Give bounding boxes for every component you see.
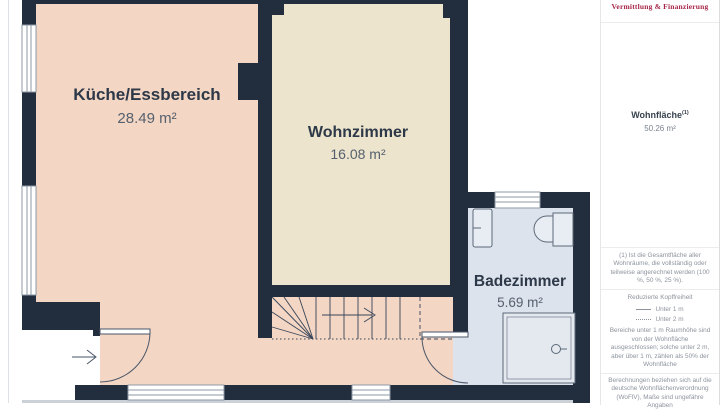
divider [601,373,719,374]
shower [503,313,575,383]
wall-notch-top [272,0,284,15]
wall-bath-left [453,297,468,336]
info-sidebar: Vermittlung & Finanzierung Wohnfläche(1)… [600,0,720,405]
wall-step-bottom-left [22,302,100,330]
legend-under-2m-label: Unter 2 m [655,316,683,323]
living-area-total: Wohnfläche(1) 50.26 m² [601,110,719,133]
wall-left-mid [22,92,36,186]
wall-living-right [450,0,468,297]
living-area-label: Wohnfläche(1) [601,110,719,120]
living-label: Wohnzimmer [308,124,408,141]
window-left-lower [22,186,36,295]
divider [601,289,719,290]
divider [601,22,719,23]
disclaimer-text: Berechnungen beziehen sich auf die deuts… [601,377,719,411]
wall-interior [258,0,272,338]
living-area: 16.08 m² [330,146,386,162]
living-floor [272,4,450,285]
wall-left-top [22,0,36,25]
wall-bath-right [573,192,590,403]
dotted-line-icon [636,319,651,320]
kitchen-area: 28.49 m² [117,110,176,127]
bath-area: 5.69 m² [497,295,543,310]
bath-door-floor [453,336,473,385]
living-area-footnote-marker: (1) [682,110,689,116]
bath-label: Badezimmer [474,273,566,290]
legend-under-2m: Unter 2 m [608,315,712,325]
kitchen-label: Küche/Essbereich [73,85,220,104]
window-bottom-right [352,385,390,400]
wall-top [22,0,468,4]
wall-door-nub [93,330,100,336]
page: Küche/Essbereich 28.49 m² Wohnzimmer 16.… [0,0,720,405]
kitchen-floor [36,4,258,338]
living-area-label-text: Wohnfläche [631,110,682,120]
window-bottom-left [128,385,224,400]
solid-line-icon [636,309,651,310]
sink [473,209,492,247]
divider [601,247,719,248]
window-bath-top [495,192,540,208]
plan-edge-bottom [22,400,590,403]
plan-edge-left [8,0,9,403]
headroom-legend: Reduzierte Kopffreiheit Unter 1 m Unter … [601,294,719,369]
headroom-note: Bereiche unter 1 m Raumhöhe sind von der… [608,327,712,369]
headroom-title: Reduzierte Kopffreiheit [608,294,712,302]
floorplan-svg: Küche/Essbereich 28.49 m² Wohnzimmer 16.… [0,0,600,405]
hall-floor [100,297,468,385]
wall-chimney [238,63,258,100]
wall-living-bottom [272,285,450,297]
legend-under-1m-label: Unter 1 m [655,306,683,313]
living-area-value: 50.26 m² [601,124,719,133]
brand-text: Vermittlung & Finanzierung [601,0,719,11]
entrance-arrow [72,350,96,364]
floorplan-panel: Küche/Essbereich 28.49 m² Wohnzimmer 16.… [0,0,600,405]
footnote-text: (1) Ist die Gesamtfläche aller Wohnräume… [601,252,719,286]
window-left-upper [22,25,36,92]
legend-under-1m: Unter 1 m [608,305,712,315]
